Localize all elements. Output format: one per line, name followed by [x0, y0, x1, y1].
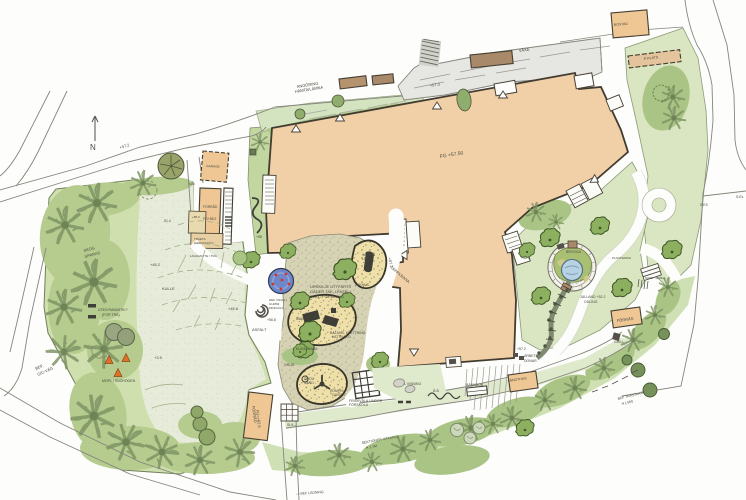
svg-text:SAND: SAND — [304, 381, 314, 385]
svg-text:St.9—: St.9— — [287, 423, 297, 427]
svg-text:51.4: 51.4 — [164, 219, 171, 223]
svg-text:PLANTERING: PLANTERING — [612, 256, 632, 260]
svg-text:JULLAND +52.2: JULLAND +52.2 — [580, 295, 605, 299]
svg-text:(SEDUM ETC): (SEDUM ETC) — [194, 241, 214, 245]
svg-text:LEKHUS: LEKHUS — [355, 283, 370, 287]
svg-text:N: N — [90, 143, 96, 152]
svg-text:ASFALT: ASFALT — [252, 327, 267, 332]
svg-text:SAND TRÄBAL: SAND TRÄBAL — [645, 276, 666, 280]
svg-text:BÄNKBOK: BÄNKBOK — [466, 383, 484, 387]
svg-text:PLATTFORMNING: PLATTFORMNING — [310, 294, 344, 299]
svg-text:+3.5: +3.5 — [154, 355, 163, 360]
svg-text:BRYGGA: BRYGGA — [566, 250, 582, 254]
svg-text:MINIGOLF: MINIGOLF — [269, 306, 284, 310]
svg-text:ARBETS-: ARBETS- — [524, 354, 540, 358]
svg-text:+57.2: +57.2 — [517, 347, 526, 351]
svg-text:+56.8: +56.8 — [267, 318, 276, 322]
svg-text:KUGELBANA: KUGELBANA — [296, 347, 318, 351]
svg-text:DONAR: DONAR — [524, 359, 537, 363]
svg-text:MÖPL I SNÖHÖGEN: MÖPL I SNÖHÖGEN — [102, 379, 136, 383]
svg-text:L VISNING: L VISNING — [404, 382, 421, 386]
svg-text:+58: +58 — [256, 235, 262, 239]
svg-text:FÖRRÅD: FÖRRÅD — [203, 204, 218, 209]
svg-text:ODLING: ODLING — [584, 300, 598, 304]
svg-text:S.Ex: S.Ex — [736, 195, 744, 199]
svg-text:VATTNARO: VATTNARO — [332, 335, 351, 339]
svg-text:S.EX: S.EX — [700, 203, 709, 207]
svg-text:GRILL: GRILL — [614, 340, 624, 344]
svg-text:+45.2: +45.2 — [150, 262, 161, 267]
svg-text:GRUS: GRUS — [284, 363, 295, 367]
svg-text:MARLIS: MARLIS — [296, 317, 310, 321]
svg-text:FG+58.2: FG+58.2 — [203, 217, 216, 221]
svg-text:LEK: LEK — [362, 257, 369, 261]
svg-text:SÅK: SÅK — [189, 181, 195, 186]
svg-text:Å-B: Å-B — [433, 388, 440, 393]
svg-text:(FÖR TRÄ): (FÖR TRÄ) — [102, 313, 120, 317]
svg-text:GARAGE: GARAGE — [206, 164, 220, 169]
svg-text:+52.3: +52.3 — [521, 256, 530, 260]
svg-text:UTEGYMNASTIK?: UTEGYMNASTIK? — [98, 308, 128, 312]
svg-text:GUNGA: GUNGA — [332, 393, 346, 397]
svg-text:+45.6: +45.6 — [228, 306, 239, 311]
svg-text:+58.0: +58.0 — [192, 215, 200, 219]
svg-text:FÖRSKOLA: FÖRSKOLA — [349, 403, 369, 407]
svg-text:KULLE: KULLE — [162, 286, 175, 291]
